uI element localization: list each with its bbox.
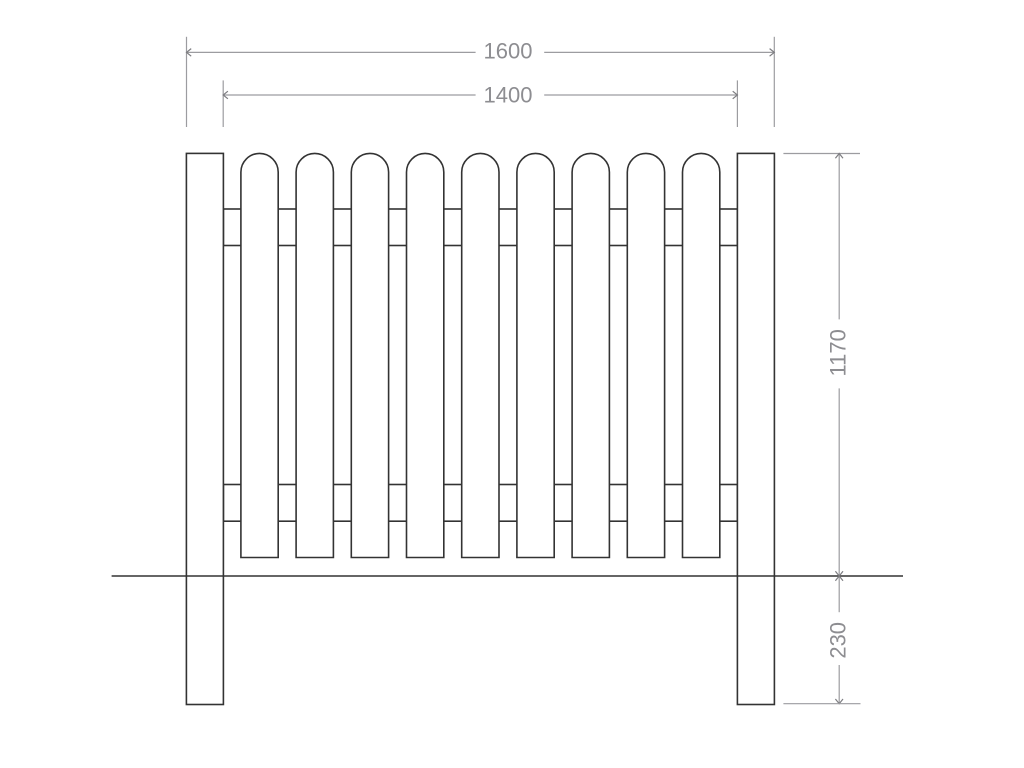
svg-text:1170: 1170 <box>826 329 851 376</box>
svg-text:1400: 1400 <box>484 82 533 107</box>
svg-text:230: 230 <box>826 622 851 659</box>
svg-text:1600: 1600 <box>484 39 533 64</box>
